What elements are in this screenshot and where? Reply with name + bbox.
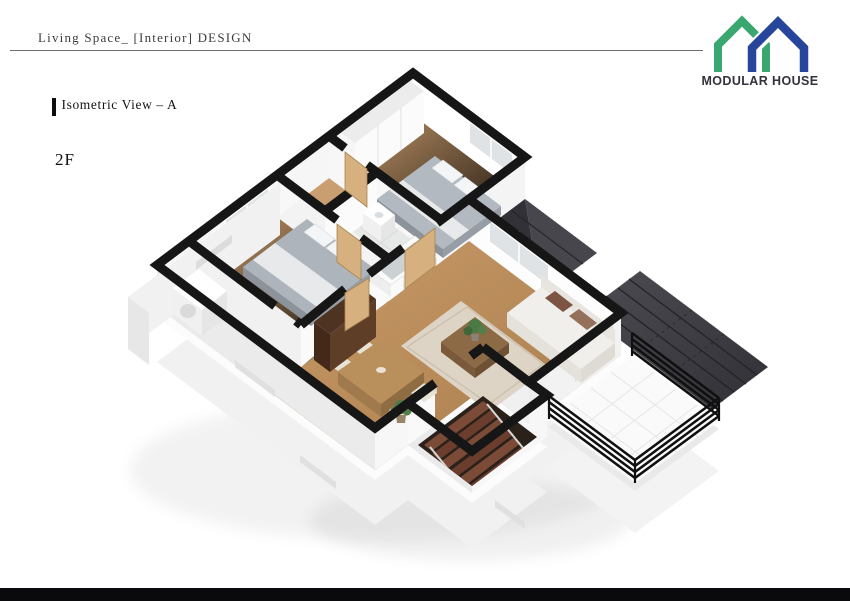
footer-bar xyxy=(0,588,850,601)
slide-page: Living Space_ [Interior] DESIGN Isometri… xyxy=(0,0,850,601)
floorplan-render xyxy=(0,0,850,601)
